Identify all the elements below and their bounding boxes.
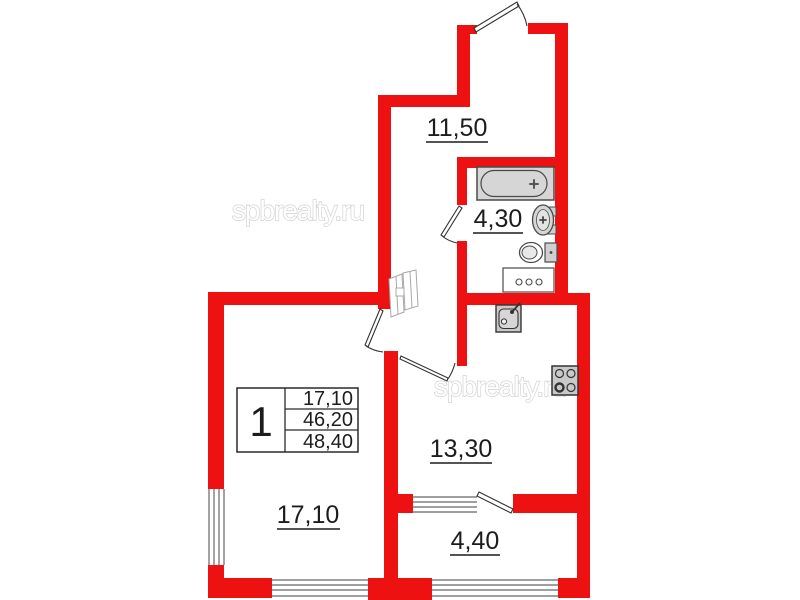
bathroom-door <box>441 206 462 243</box>
bathroom-sink <box>533 205 557 235</box>
watermark-text: spbrealty.ru <box>434 371 566 402</box>
washing-machine <box>503 268 554 292</box>
total-area-value: 48,40 <box>303 431 353 453</box>
wall-segment <box>457 157 467 205</box>
wardrobe <box>389 270 418 317</box>
apartment-info-table: 1 17,10 46,20 48,40 <box>237 388 358 453</box>
toilet <box>520 243 558 263</box>
wall-segment <box>457 293 590 305</box>
wall-segment <box>378 95 391 309</box>
wall-segment <box>577 293 590 513</box>
window-living-left <box>209 489 224 565</box>
bathtub <box>477 167 554 200</box>
kitchen-door <box>400 356 455 381</box>
wall-segment <box>558 578 590 598</box>
wall-segment <box>384 351 398 598</box>
wall-segment <box>378 95 468 107</box>
wall-segment <box>208 578 272 598</box>
floor-plan-page: spbrealty.ru spbrealty.ru <box>0 0 800 600</box>
window-living-bottom <box>272 580 368 596</box>
floor-plan: spbrealty.ru spbrealty.ru <box>0 0 800 600</box>
window-balcony-bottom <box>432 580 558 596</box>
living-area-value: 17,10 <box>303 388 353 410</box>
wall-segment <box>384 494 413 513</box>
wall-segment <box>208 292 388 305</box>
entrance-door <box>474 2 527 32</box>
living-area-label: 17,10 <box>277 501 340 529</box>
stove <box>552 366 578 395</box>
kitchen-sink <box>496 303 521 332</box>
bathroom-area-label: 4,30 <box>474 205 523 233</box>
rooms-count-value: 1 <box>249 398 272 445</box>
window-kitchen-balcony <box>413 497 477 512</box>
watermark-text: spbrealty.ru <box>232 195 364 226</box>
wall-segment <box>368 578 432 600</box>
kitchen-area-label: 13,30 <box>430 435 493 463</box>
wall-segment <box>457 25 470 107</box>
balcony-area-label: 4,40 <box>451 527 500 555</box>
hallway-area-label: 11,50 <box>427 114 488 142</box>
balcony-door <box>477 492 513 513</box>
living-room-door <box>365 309 383 352</box>
wall-segment <box>208 292 224 489</box>
apartment-area-value: 46,20 <box>303 409 353 431</box>
